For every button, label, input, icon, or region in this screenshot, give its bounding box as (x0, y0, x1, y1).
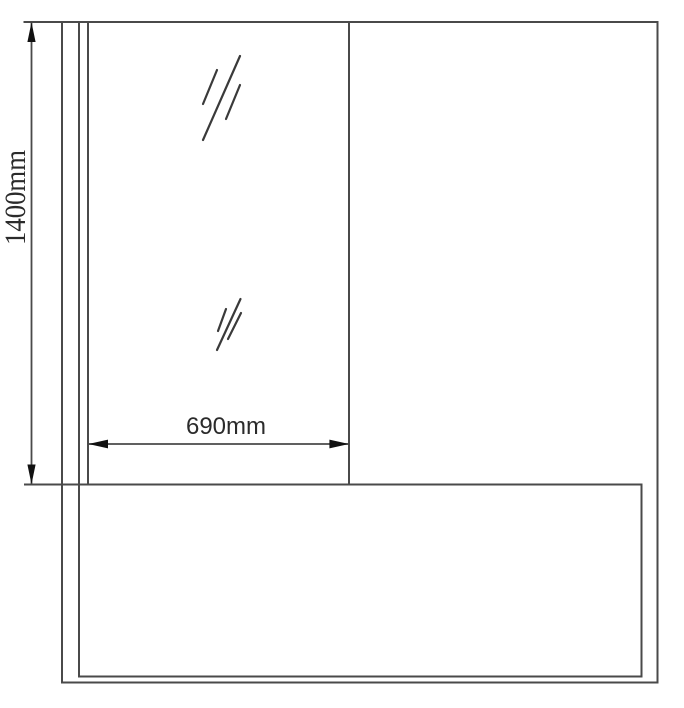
svg-text:1400mm: 1400mm (0, 150, 32, 245)
svg-text:690mm: 690mm (186, 413, 266, 440)
